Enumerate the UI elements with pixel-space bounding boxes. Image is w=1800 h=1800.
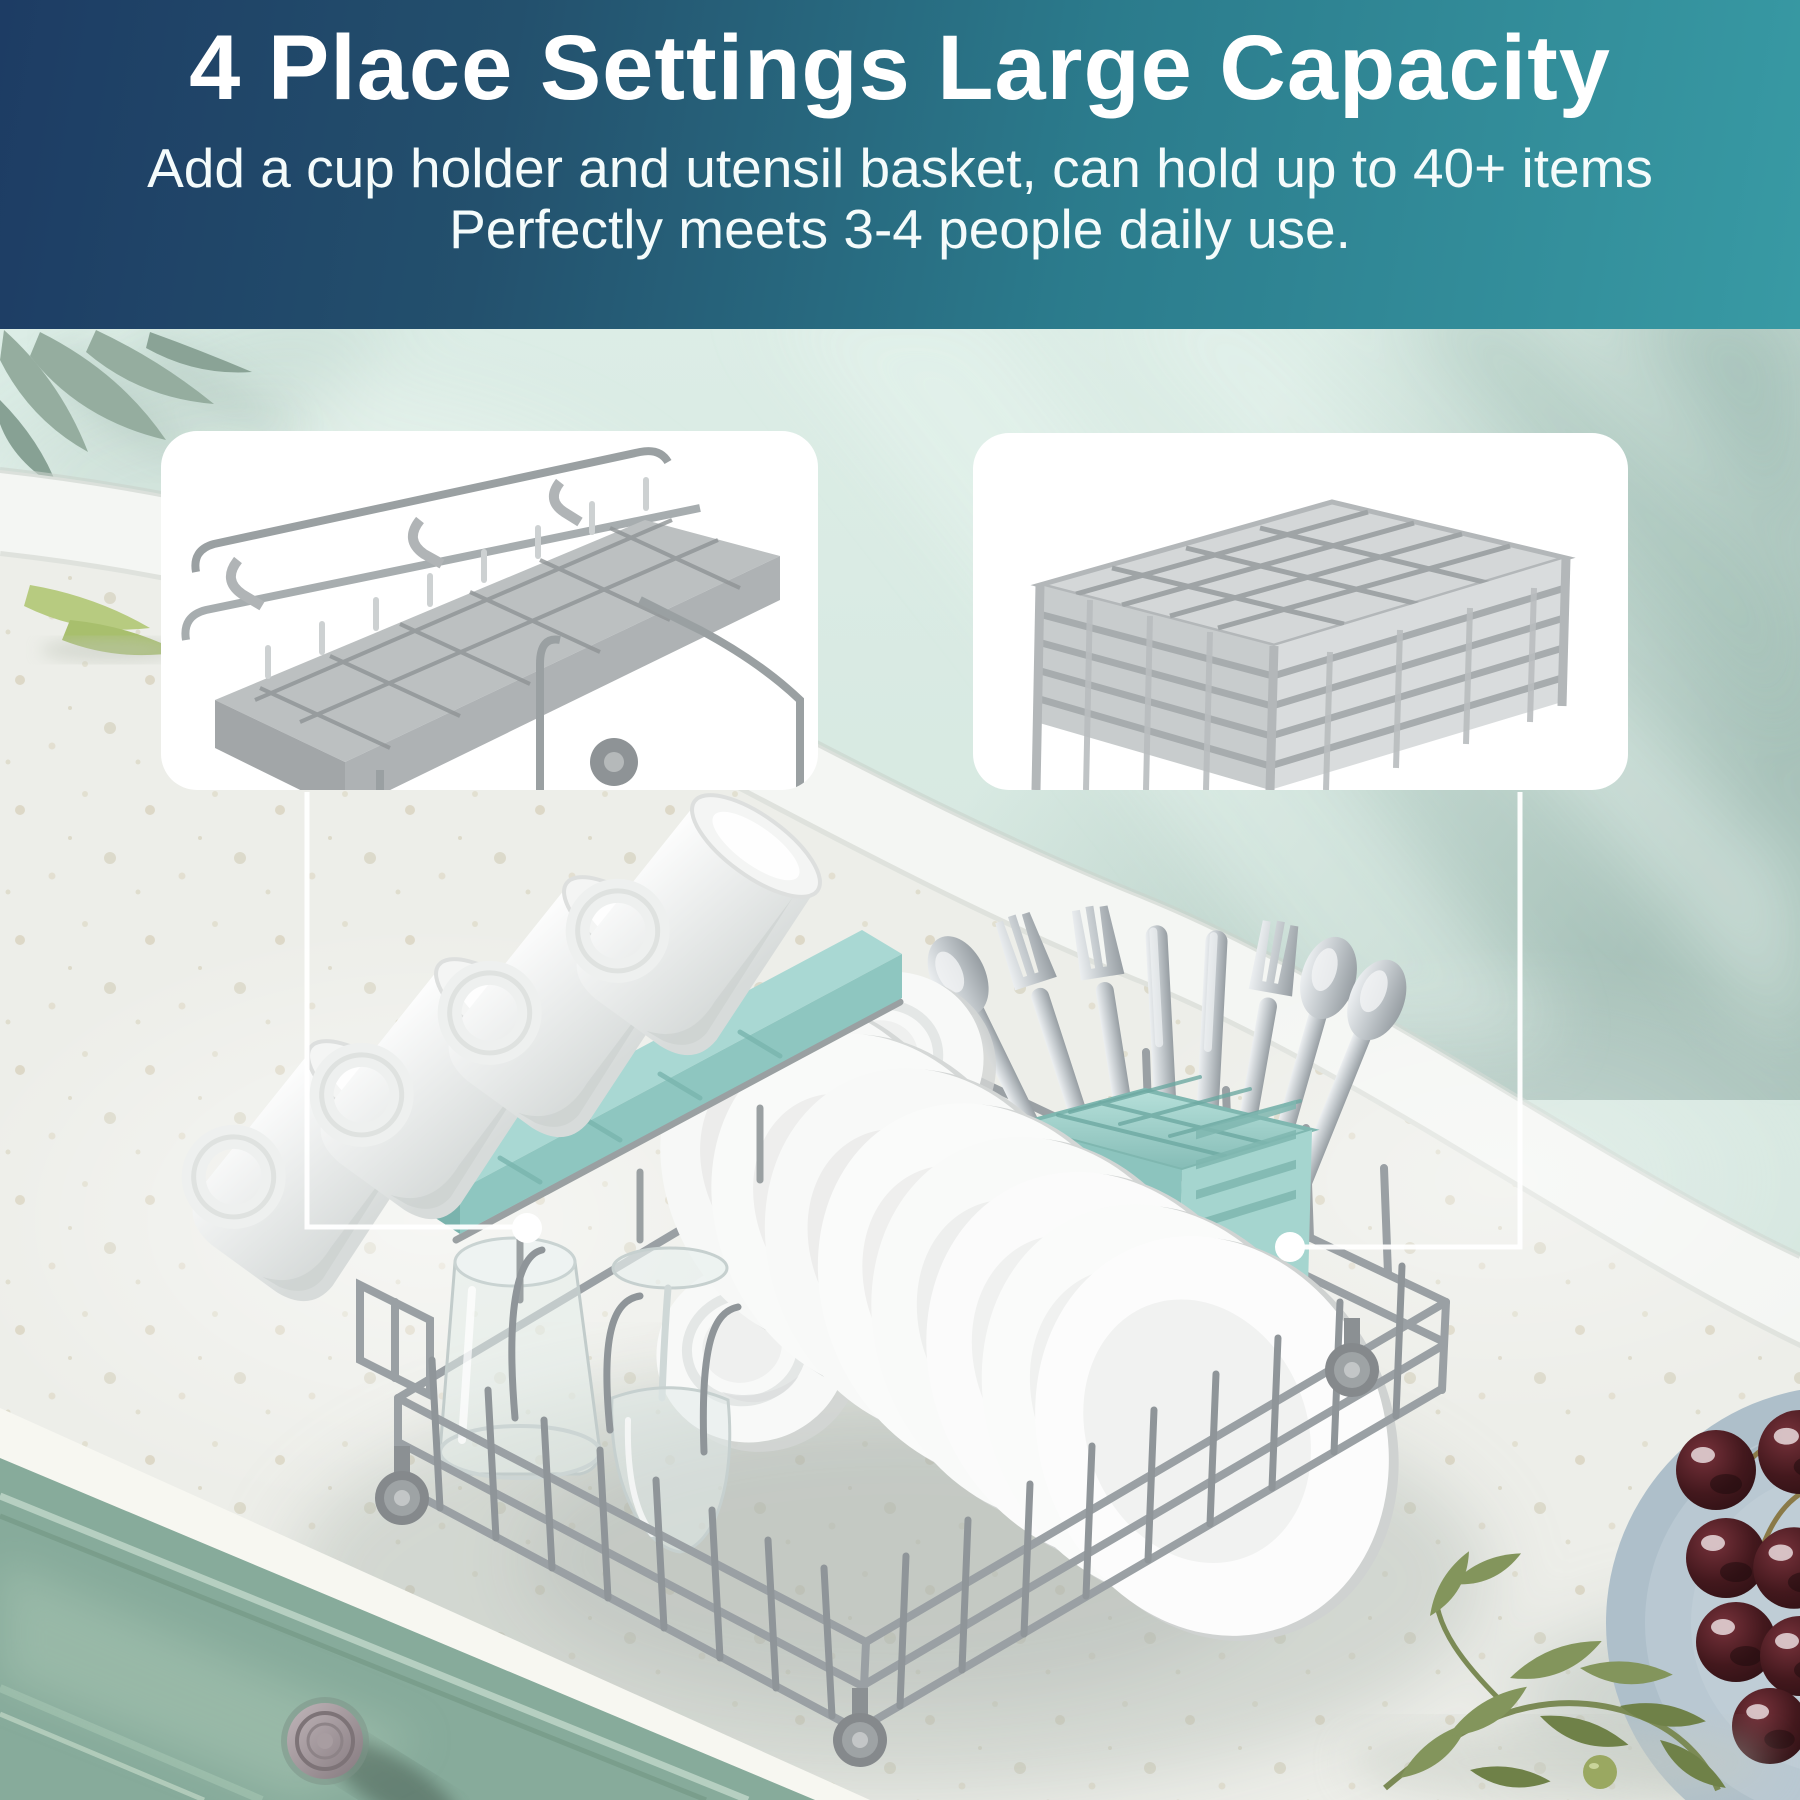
utensil-basket-callout-card: [973, 433, 1628, 790]
cup-holder-callout-card: [161, 431, 818, 812]
headline-banner: 4 Place Settings Large Capacity Add a cu…: [0, 0, 1800, 329]
headline: 4 Place Settings Large Capacity: [0, 0, 1800, 116]
subtitle-line-1: Add a cup holder and utensil basket, can…: [0, 138, 1800, 200]
callout-leader-dot-left: [512, 1213, 542, 1243]
callout-leader-dot-right: [1275, 1232, 1305, 1262]
subtitle-line-2: Perfectly meets 3-4 people daily use.: [0, 199, 1800, 261]
